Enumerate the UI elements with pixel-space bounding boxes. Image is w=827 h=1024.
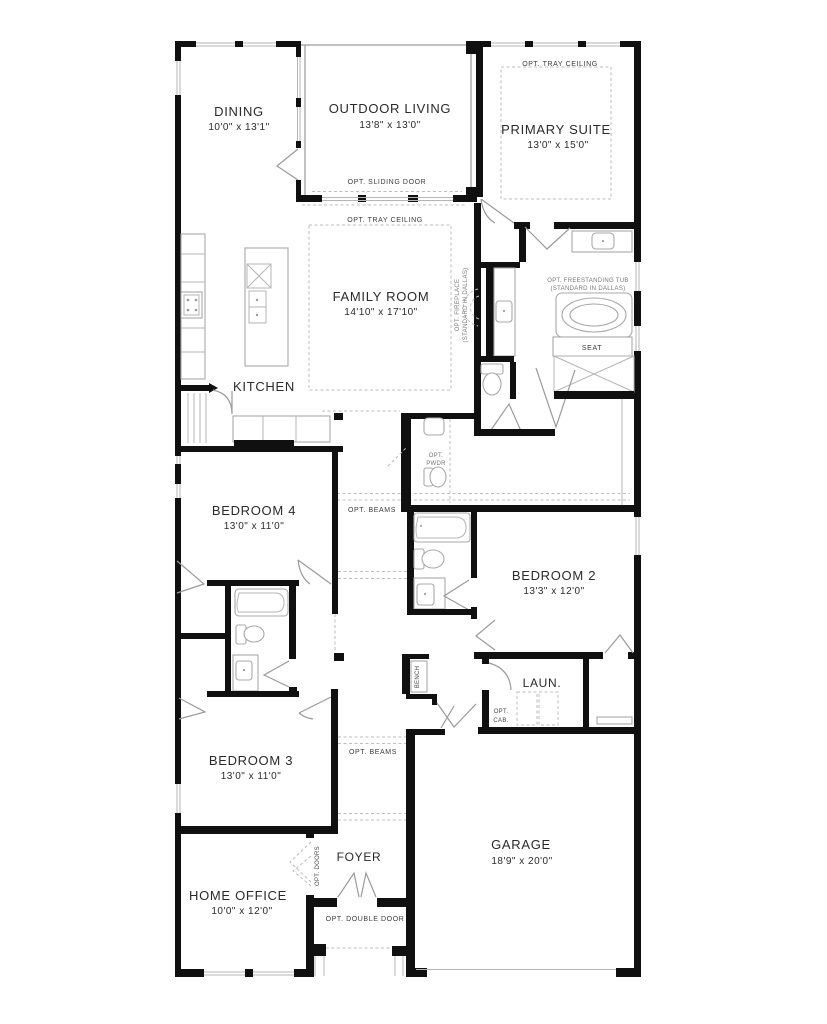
svg-text:OPT. SLIDING DOOR: OPT. SLIDING DOOR <box>348 179 427 186</box>
svg-text:10'0" x 13'1": 10'0" x 13'1" <box>208 122 269 133</box>
svg-text:BENCH: BENCH <box>415 666 421 689</box>
svg-text:13'0" x 11'0": 13'0" x 11'0" <box>221 771 282 782</box>
svg-text:DINING: DINING <box>214 104 264 119</box>
svg-text:14'10" x 17'10": 14'10" x 17'10" <box>344 307 417 318</box>
svg-text:LAUN.: LAUN. <box>523 676 562 690</box>
svg-text:PRIMARY SUITE: PRIMARY SUITE <box>501 122 611 137</box>
svg-text:FOYER: FOYER <box>337 850 382 864</box>
svg-text:(STANDARD IN DALLAS): (STANDARD IN DALLAS) <box>551 286 626 292</box>
svg-text:13'3" x 12'0": 13'3" x 12'0" <box>523 586 584 597</box>
svg-text:FAMILY ROOM: FAMILY ROOM <box>333 289 430 304</box>
svg-text:PWDR: PWDR <box>426 461 446 467</box>
svg-text:(STANDARD IN DALLAS): (STANDARD IN DALLAS) <box>463 268 469 343</box>
svg-text:18'9" x 20'0": 18'9" x 20'0" <box>491 856 552 867</box>
svg-text:OPT. FREESTANDING TUB: OPT. FREESTANDING TUB <box>547 278 628 284</box>
svg-text:OPT.: OPT. <box>494 709 509 715</box>
svg-text:GARAGE: GARAGE <box>491 837 551 852</box>
svg-text:OPT. DOUBLE DOOR: OPT. DOUBLE DOOR <box>326 916 405 923</box>
svg-text:10'0" x 12'0": 10'0" x 12'0" <box>211 906 272 917</box>
svg-text:SEAT: SEAT <box>582 345 602 352</box>
svg-text:13'0" x 15'0": 13'0" x 15'0" <box>527 140 588 151</box>
svg-text:OUTDOOR LIVING: OUTDOOR LIVING <box>329 101 451 116</box>
svg-text:OPT. TRAY CEILING: OPT. TRAY CEILING <box>347 217 423 224</box>
svg-text:13'8" x 13'0": 13'8" x 13'0" <box>359 120 420 131</box>
svg-text:13'0" x 11'0": 13'0" x 11'0" <box>224 521 285 532</box>
svg-text:OPT.: OPT. <box>429 453 444 459</box>
svg-text:CAB.: CAB. <box>493 718 508 724</box>
svg-text:OPT. BEAMS: OPT. BEAMS <box>349 749 397 756</box>
svg-text:BEDROOM 3: BEDROOM 3 <box>209 753 293 768</box>
svg-text:BEDROOM 4: BEDROOM 4 <box>212 503 296 518</box>
svg-text:KITCHEN: KITCHEN <box>233 379 295 394</box>
svg-text:HOME OFFICE: HOME OFFICE <box>189 888 287 903</box>
svg-text:OPT. DOORS: OPT. DOORS <box>315 846 321 886</box>
svg-text:OPT. FIREPLACE: OPT. FIREPLACE <box>455 279 461 332</box>
svg-text:OPT. BEAMS: OPT. BEAMS <box>348 507 396 514</box>
svg-text:BEDROOM 2: BEDROOM 2 <box>512 568 596 583</box>
